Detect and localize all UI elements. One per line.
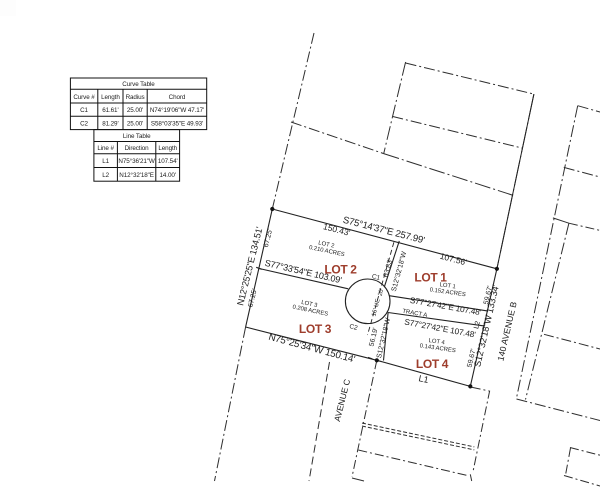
svg-text:25.00': 25.00': [127, 120, 143, 127]
svg-text:67.25': 67.25': [263, 228, 274, 248]
svg-text:Line #: Line #: [97, 145, 114, 152]
svg-text:S58°03'35"E 49.93': S58°03'35"E 49.93': [151, 119, 203, 127]
svg-text:25.00': 25.00': [127, 107, 143, 114]
svg-text:107.54': 107.54': [158, 158, 178, 165]
svg-text:Line Table: Line Table: [123, 133, 151, 140]
svg-text:LOT 1: LOT 1: [414, 271, 447, 285]
svg-text:LOT 2: LOT 2: [324, 263, 357, 277]
svg-text:0.152 ACRES: 0.152 ACRES: [429, 287, 466, 298]
svg-text:C2: C2: [348, 323, 358, 332]
svg-text:N74°19'06"W 47.17': N74°19'06"W 47.17': [150, 106, 204, 114]
svg-text:0.143 ACRES: 0.143 ACRES: [419, 343, 456, 354]
svg-text:140 AVENUE B: 140 AVENUE B: [495, 301, 518, 362]
svg-text:81.29': 81.29': [102, 120, 118, 127]
svg-text:C2: C2: [80, 120, 88, 127]
svg-text:61.61': 61.61': [102, 107, 118, 114]
svg-text:LOT 3: LOT 3: [299, 322, 332, 336]
svg-text:C1: C1: [80, 107, 88, 114]
svg-text:56.19': 56.19': [369, 327, 380, 347]
svg-text:Direction: Direction: [125, 145, 150, 152]
svg-text:LOT 4: LOT 4: [416, 357, 449, 371]
svg-text:63.83': 63.83': [383, 258, 395, 278]
svg-text:L1: L1: [102, 158, 109, 165]
svg-text:Radius: Radius: [126, 94, 145, 101]
svg-text:67.25': 67.25': [247, 288, 258, 308]
svg-text:L1: L1: [418, 373, 430, 385]
svg-text:Curve #: Curve #: [73, 94, 95, 101]
svg-text:N75°36'21"W: N75°36'21"W: [118, 157, 155, 165]
svg-text:Chord: Chord: [169, 94, 186, 101]
svg-text:Curve Table: Curve Table: [122, 81, 155, 88]
svg-text:AVENUE C: AVENUE C: [332, 378, 352, 422]
svg-text:Length: Length: [101, 94, 120, 101]
svg-text:S12°32'18"W: S12°32'18"W: [375, 317, 392, 359]
svg-text:16' UE: 16' UE: [371, 298, 381, 317]
svg-text:N12°32'18"E: N12°32'18"E: [119, 171, 154, 179]
svg-text:S12°32'18"W: S12°32'18"W: [390, 250, 409, 292]
svg-text:N75°25'34"W 150.14': N75°25'34"W 150.14': [267, 332, 356, 366]
svg-text:L2: L2: [102, 172, 109, 179]
svg-text:C1: C1: [371, 273, 381, 282]
svg-text:14.00': 14.00': [160, 172, 176, 179]
svg-text:Length: Length: [158, 145, 177, 152]
svg-text:107.56': 107.56': [439, 251, 469, 268]
svg-text:20': 20': [378, 288, 386, 297]
